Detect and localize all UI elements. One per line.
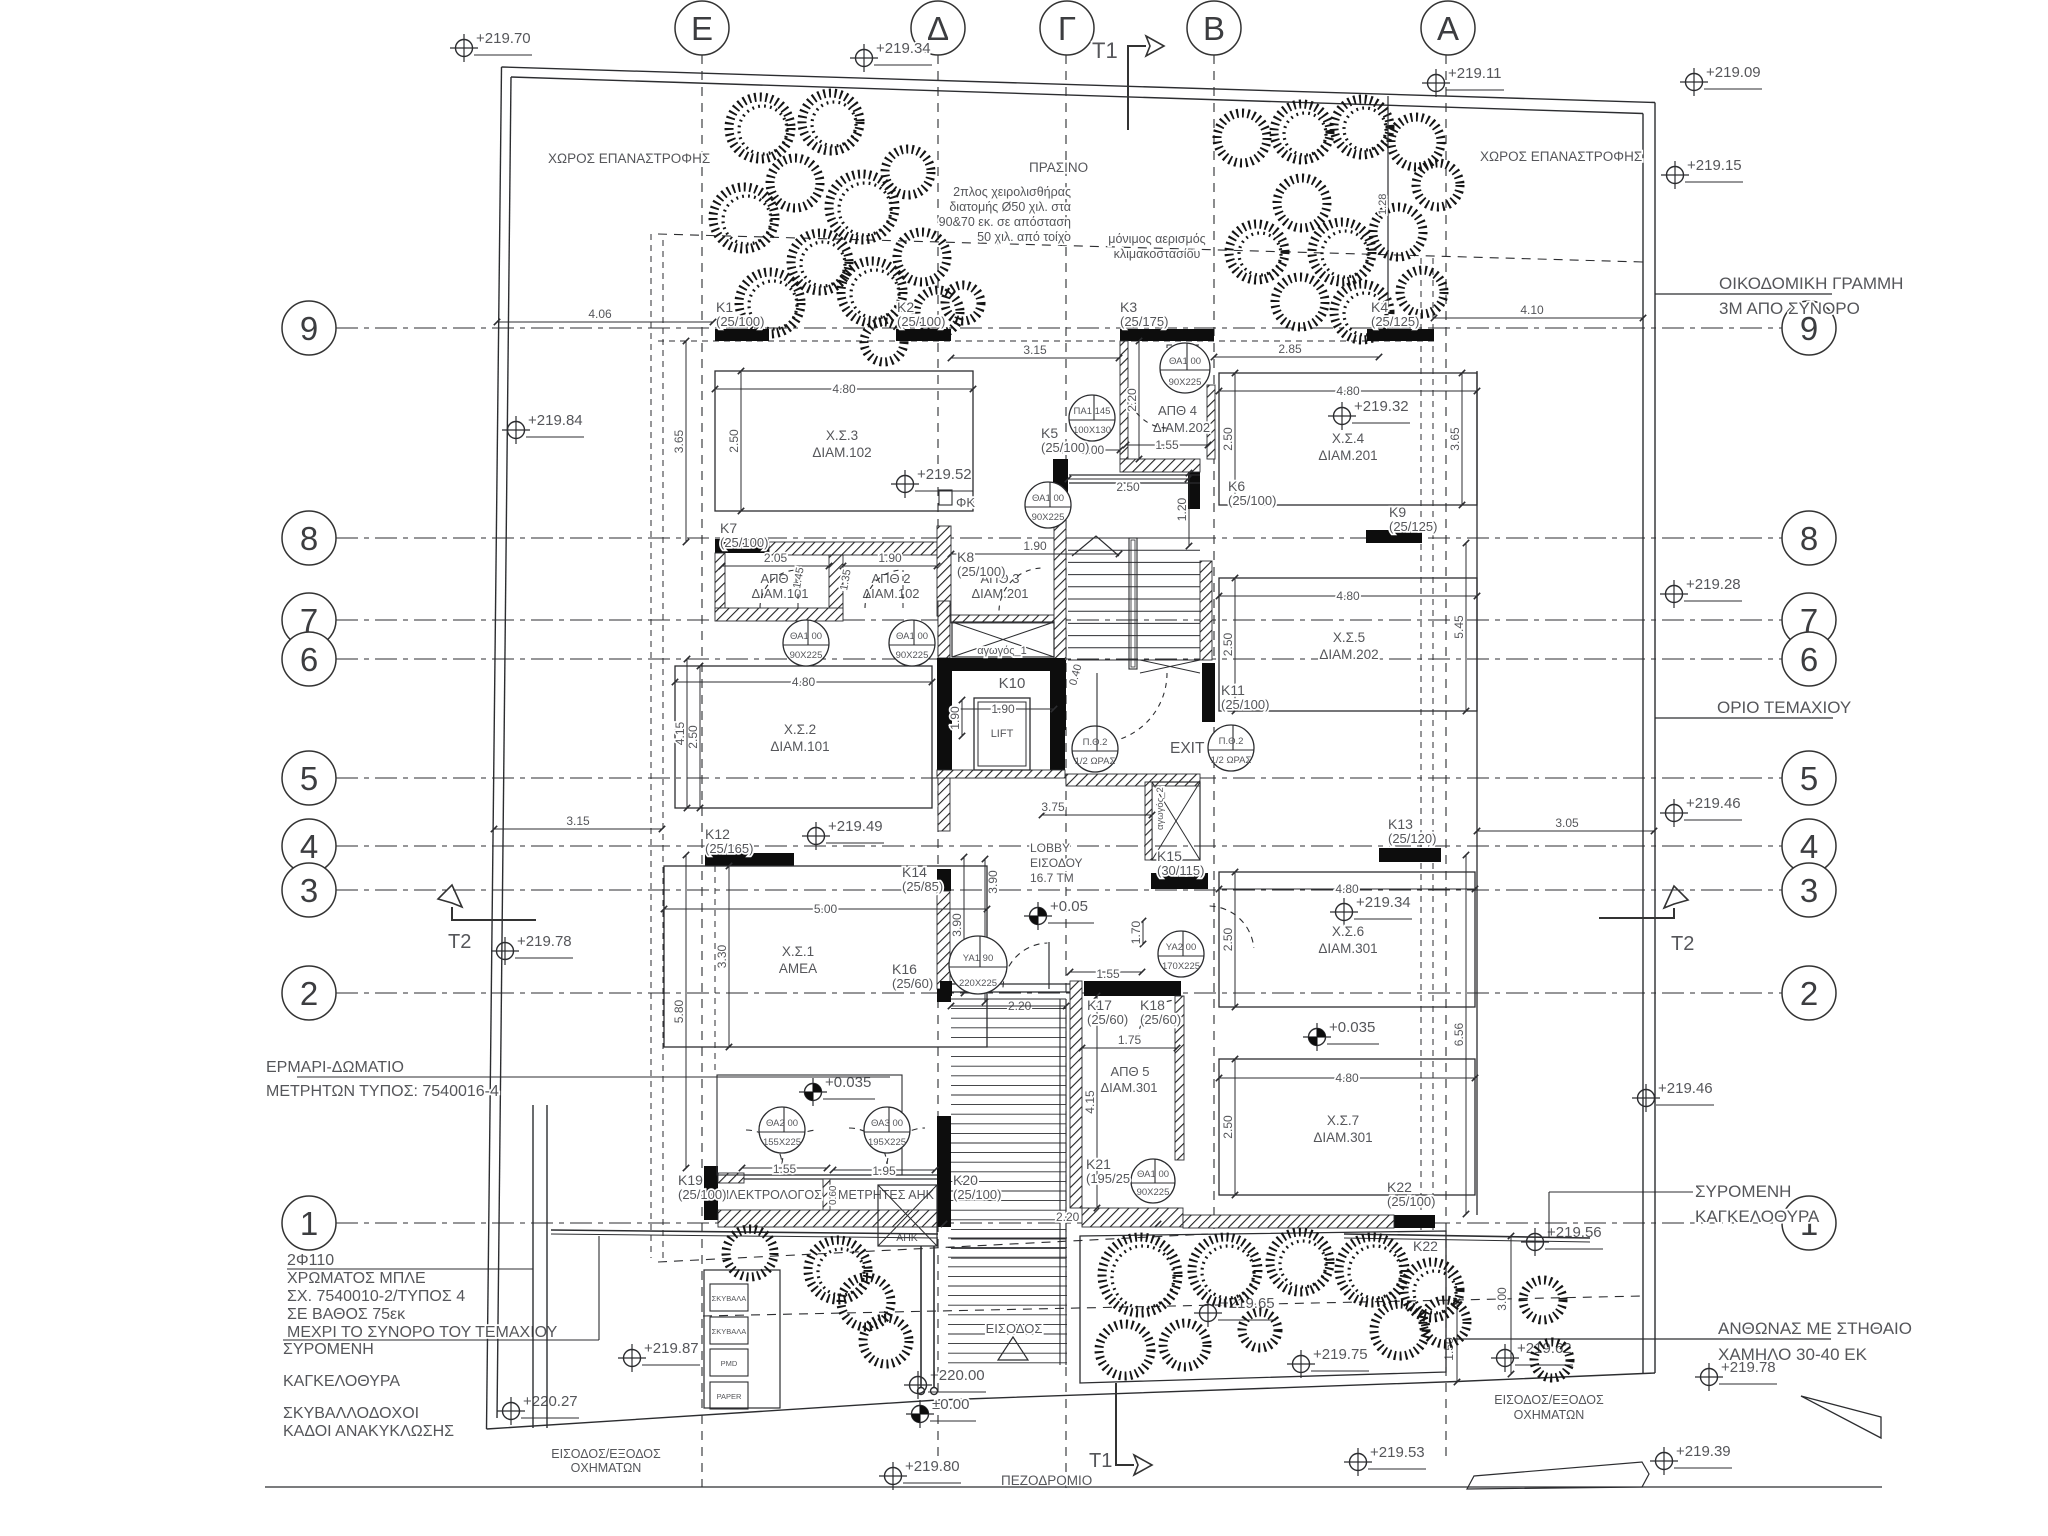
svg-text:(25/60): (25/60)	[1087, 1012, 1128, 1027]
svg-text:ΧΩΡΟΣ ΕΠΑΝΑΣΤΡΟΦΗΣ: ΧΩΡΟΣ ΕΠΑΝΑΣΤΡΟΦΗΣ	[1480, 149, 1642, 164]
svg-text:(25/100): (25/100)	[957, 564, 1005, 579]
svg-text:ΣΥΡΟΜΕΝΗ: ΣΥΡΟΜΕΝΗ	[1695, 1182, 1791, 1201]
svg-text:ΠΕΖΟΔΡΟΜΙΟ: ΠΕΖΟΔΡΟΜΙΟ	[1001, 1473, 1092, 1488]
svg-text:4: 4	[1800, 828, 1818, 865]
svg-text:195Χ225: 195Χ225	[868, 1137, 906, 1148]
svg-text:5.80: 5.80	[672, 999, 686, 1023]
svg-text:+0.05: +0.05	[1050, 898, 1088, 915]
svg-text:4.80: 4.80	[1336, 384, 1360, 398]
svg-text:Γ: Γ	[1058, 10, 1076, 47]
svg-text:ΕΡΜΑΡΙ-ΔΩΜΑΤΙΟ: ΕΡΜΑΡΙ-ΔΩΜΑΤΙΟ	[266, 1059, 404, 1076]
svg-text:1.90: 1.90	[1023, 539, 1047, 553]
svg-text:K20: K20	[953, 1172, 978, 1188]
svg-text:ΔΙΑΜ.102: ΔΙΑΜ.102	[812, 445, 871, 460]
svg-text:(25/85): (25/85)	[902, 879, 943, 894]
svg-text:6: 6	[1800, 641, 1818, 678]
svg-text:4.10: 4.10	[1520, 303, 1544, 317]
svg-text:1.70: 1.70	[1129, 920, 1143, 944]
svg-text:YA2 00: YA2 00	[1166, 942, 1196, 953]
svg-text:ΟΙΚΟΔΟΜΙΚΗ ΓΡΑΜΜΗ: ΟΙΚΟΔΟΜΙΚΗ ΓΡΑΜΜΗ	[1719, 274, 1903, 293]
svg-text:+219.75: +219.75	[1313, 1346, 1368, 1363]
svg-text:(25/125): (25/125)	[1371, 314, 1419, 329]
svg-text:3.65: 3.65	[1448, 427, 1462, 451]
svg-text:5.45: 5.45	[1452, 615, 1466, 639]
svg-text:K21: K21	[1086, 1156, 1111, 1172]
svg-text:μόνιμος αερισμός: μόνιμος αερισμός	[1108, 232, 1205, 246]
svg-text:+219.84: +219.84	[528, 412, 583, 429]
svg-text:3.05: 3.05	[1555, 816, 1579, 830]
svg-text:ΜΕΧΡΙ ΤΟ ΣΥΝΟΡΟ ΤΟΥ ΤΕΜΑΧΙΟΥ: ΜΕΧΡΙ ΤΟ ΣΥΝΟΡΟ ΤΟΥ ΤΕΜΑΧΙΟΥ	[287, 1324, 558, 1341]
svg-text:ΘΑ1 00: ΘΑ1 00	[1169, 356, 1201, 367]
svg-text:2.85: 2.85	[1278, 342, 1302, 356]
svg-text:90Χ225: 90Χ225	[1169, 377, 1202, 388]
svg-text:+219.11: +219.11	[1448, 65, 1502, 82]
svg-text:90Χ225: 90Χ225	[1137, 1187, 1170, 1198]
svg-text:+219.52: +219.52	[917, 466, 972, 483]
svg-text:±0.00: ±0.00	[932, 1396, 969, 1413]
svg-text:3.15: 3.15	[566, 814, 590, 828]
svg-text:LOBBY: LOBBY	[1030, 841, 1070, 855]
svg-text:K4: K4	[1371, 299, 1388, 315]
svg-text:(25/100): (25/100)	[678, 1187, 726, 1202]
svg-text:ΔΙΑΜ.201: ΔΙΑΜ.201	[1318, 448, 1377, 463]
svg-text:(25/100): (25/100)	[716, 314, 764, 329]
svg-text:220Χ225: 220Χ225	[959, 978, 997, 989]
svg-text:+219.39: +219.39	[1676, 1443, 1731, 1460]
svg-text:K10: K10	[999, 675, 1026, 692]
svg-text:K9: K9	[1389, 504, 1406, 520]
svg-text:K19: K19	[678, 1172, 703, 1188]
svg-text:K11: K11	[1221, 682, 1245, 698]
svg-text:(25/100): (25/100)	[897, 314, 945, 329]
svg-text:(25/175): (25/175)	[1120, 314, 1168, 329]
svg-text:LIFT: LIFT	[991, 728, 1014, 740]
svg-text:5: 5	[1800, 760, 1818, 797]
svg-text:ΘΑ2 00: ΘΑ2 00	[766, 1118, 798, 1129]
svg-text:0.60: 0.60	[828, 1185, 839, 1205]
svg-text:T2: T2	[1671, 933, 1694, 955]
svg-text:YA1 90: YA1 90	[963, 953, 993, 964]
svg-text:(25/100): (25/100)	[1221, 697, 1269, 712]
svg-text:2.50: 2.50	[686, 725, 700, 749]
svg-text:ΧΑΜΗΛΟ 30-40 ΕΚ: ΧΑΜΗΛΟ 30-40 ΕΚ	[1718, 1345, 1868, 1364]
svg-text:K18: K18	[1140, 997, 1165, 1013]
svg-text:ΑΠΘ 4: ΑΠΘ 4	[1158, 403, 1197, 418]
svg-text:K2: K2	[897, 299, 914, 315]
svg-text:ΠΑ1 145: ΠΑ1 145	[1074, 406, 1111, 417]
svg-text:ΚΑΓΚΕΛΟΘΥΡΑ: ΚΑΓΚΕΛΟΘΥΡΑ	[283, 1373, 400, 1390]
svg-text:ΔΙΑΜ.202: ΔΙΑΜ.202	[1153, 420, 1210, 435]
svg-text:+219.78: +219.78	[517, 933, 572, 950]
svg-text:+219.80: +219.80	[905, 1458, 960, 1475]
svg-text:4.80: 4.80	[1335, 882, 1359, 896]
svg-text:+220.00: +220.00	[930, 1367, 985, 1384]
svg-text:ΘΑ1 00: ΘΑ1 00	[1137, 1169, 1169, 1180]
svg-text:3.30: 3.30	[715, 944, 729, 968]
svg-text:3.65: 3.65	[672, 429, 686, 453]
svg-text:3Μ ΑΠΟ ΣΥΝΟΡΟ: 3Μ ΑΠΟ ΣΥΝΟΡΟ	[1719, 299, 1860, 318]
svg-text:3.15: 3.15	[1023, 343, 1047, 357]
svg-text:Χ.Σ.2: Χ.Σ.2	[784, 722, 816, 737]
svg-text:(195/25: (195/25	[1086, 1171, 1130, 1186]
svg-text:8: 8	[1800, 520, 1818, 557]
svg-text:EXIT: EXIT	[1170, 740, 1205, 757]
svg-text:4.80: 4.80	[1336, 589, 1360, 603]
svg-text:2.20: 2.20	[1056, 1210, 1080, 1224]
svg-text:+219.32: +219.32	[1354, 398, 1409, 415]
svg-text:ΔΙΑΜ.301: ΔΙΑΜ.301	[1313, 1130, 1372, 1145]
svg-text:ΟΡΙΟ ΤΕΜΑΧΙΟΥ: ΟΡΙΟ ΤΕΜΑΧΙΟΥ	[1717, 698, 1851, 717]
svg-text:+219.09: +219.09	[1706, 64, 1761, 81]
svg-text:κλιμακοστασίου: κλιμακοστασίου	[1114, 247, 1201, 261]
svg-text:1.90: 1.90	[991, 702, 1015, 716]
svg-text:9: 9	[300, 310, 318, 347]
svg-text:3.90: 3.90	[986, 870, 1000, 894]
svg-text:ΠΡΑΣΙΝΟ: ΠΡΑΣΙΝΟ	[1029, 160, 1088, 175]
svg-text:ΔΙΑΜ.201: ΔΙΑΜ.201	[971, 586, 1028, 601]
svg-text:3: 3	[300, 872, 318, 909]
svg-text:90Χ225: 90Χ225	[896, 650, 929, 661]
svg-text:(30/115): (30/115)	[1157, 863, 1204, 878]
svg-text:ΘΑ3 00: ΘΑ3 00	[871, 1118, 903, 1129]
svg-text:+219.34: +219.34	[1356, 894, 1411, 911]
svg-text:2.50: 2.50	[1116, 480, 1140, 494]
svg-text:ΧΩΡΟΣ ΕΠΑΝΑΣΤΡΟΦΗΣ: ΧΩΡΟΣ ΕΠΑΝΑΣΤΡΟΦΗΣ	[548, 151, 710, 166]
svg-text:2: 2	[300, 975, 318, 1012]
svg-text:4.15: 4.15	[1083, 1090, 1097, 1114]
svg-text:2.50: 2.50	[1221, 927, 1235, 951]
svg-text:90Χ225: 90Χ225	[790, 650, 823, 661]
svg-text:4.80: 4.80	[1335, 1071, 1359, 1085]
svg-text:6: 6	[300, 641, 318, 678]
svg-text:(25/100): (25/100)	[1228, 493, 1276, 508]
svg-text:ΔΙΑΜ.202: ΔΙΑΜ.202	[1319, 647, 1378, 662]
svg-text:2.20: 2.20	[1125, 388, 1139, 412]
svg-text:8: 8	[300, 520, 318, 557]
svg-text:+219.70: +219.70	[476, 30, 531, 47]
svg-text:K8: K8	[957, 549, 974, 565]
svg-text:K5: K5	[1041, 425, 1058, 441]
svg-text:ΕΙΣΟΔΟΣ/ΕΞΟΔΟΣ: ΕΙΣΟΔΟΣ/ΕΞΟΔΟΣ	[1494, 1393, 1604, 1407]
svg-text:PMD: PMD	[721, 1359, 738, 1368]
svg-text:ΣΕ ΒΑΘΟΣ 75εκ: ΣΕ ΒΑΘΟΣ 75εκ	[287, 1306, 406, 1323]
svg-text:Χ.Σ.5: Χ.Σ.5	[1333, 630, 1365, 645]
svg-text:ΗΛΕΚΤΡΟΛΟΓΟΣ: ΗΛΕΚΤΡΟΛΟΓΟΣ	[720, 1188, 822, 1202]
svg-text:(25/100): (25/100)	[953, 1187, 1001, 1202]
svg-text:K7: K7	[720, 520, 737, 536]
svg-text:(25/100): (25/100)	[720, 535, 768, 550]
svg-text:(25/100): (25/100)	[1387, 1194, 1435, 1209]
svg-text:ΜΕΤΡΗΤΩΝ ΤΥΠΟΣ: 7540016-4: ΜΕΤΡΗΤΩΝ ΤΥΠΟΣ: 7540016-4	[266, 1083, 499, 1100]
svg-text:(25/125): (25/125)	[1389, 519, 1437, 534]
svg-text:ΧΡΩΜΑΤΟΣ ΜΠΛΕ: ΧΡΩΜΑΤΟΣ ΜΠΛΕ	[287, 1270, 426, 1287]
svg-text:ΣΥΡΟΜΕΝΗ: ΣΥΡΟΜΕΝΗ	[283, 1341, 374, 1358]
svg-text:διατομής Ø50 χιλ. στα: διατομής Ø50 χιλ. στα	[949, 200, 1071, 214]
svg-text:3.00: 3.00	[1495, 1287, 1509, 1311]
svg-text:ΣΧ. 7540010-2/ΤΥΠΟΣ 4: ΣΧ. 7540010-2/ΤΥΠΟΣ 4	[287, 1288, 465, 1305]
svg-text:3.90: 3.90	[950, 913, 964, 937]
svg-text:(25/60): (25/60)	[1140, 1012, 1181, 1027]
svg-text:Χ.Σ.3: Χ.Σ.3	[826, 428, 858, 443]
svg-text:+219.15: +219.15	[1687, 157, 1742, 174]
svg-text:1.20: 1.20	[1175, 497, 1189, 521]
svg-text:4.80: 4.80	[792, 675, 816, 689]
svg-text:2.50: 2.50	[1221, 632, 1235, 656]
svg-text:1.28: 1.28	[1377, 194, 1389, 215]
svg-text:K22: K22	[1413, 1238, 1438, 1254]
svg-text:3.75: 3.75	[1041, 800, 1065, 814]
svg-text:+219.49: +219.49	[828, 818, 883, 835]
svg-text:K3: K3	[1120, 299, 1137, 315]
svg-text:αγωγός_1: αγωγός_1	[977, 645, 1027, 657]
svg-text:Π.Θ.2: Π.Θ.2	[1219, 736, 1244, 747]
svg-text:K17: K17	[1087, 997, 1112, 1013]
svg-text:155Χ225: 155Χ225	[763, 1137, 801, 1148]
svg-text:+219.53: +219.53	[1370, 1444, 1425, 1461]
svg-text:100Χ130: 100Χ130	[1073, 425, 1111, 436]
svg-text:αγωγός_2: αγωγός_2	[1155, 787, 1166, 830]
svg-text:T2: T2	[448, 931, 471, 953]
svg-text:90Χ225: 90Χ225	[1032, 512, 1065, 523]
svg-text:4.15: 4.15	[673, 721, 687, 745]
svg-text:1.55: 1.55	[773, 1162, 797, 1176]
svg-text:ΔΙΑΜ.301: ΔΙΑΜ.301	[1318, 941, 1377, 956]
svg-text:90&70 εκ. σε απόσταση: 90&70 εκ. σε απόσταση	[939, 215, 1071, 229]
svg-text:ΣΚΥΒΑΛΑ: ΣΚΥΒΑΛΑ	[712, 1294, 747, 1303]
svg-text:A: A	[1437, 10, 1459, 47]
svg-text:Χ.Σ.4: Χ.Σ.4	[1332, 431, 1365, 446]
svg-text:1/2 ΩΡΑΣ: 1/2 ΩΡΑΣ	[1211, 755, 1252, 766]
svg-text:K22: K22	[1387, 1179, 1412, 1195]
svg-text:50 χιλ. από τοίχο: 50 χιλ. από τοίχο	[977, 230, 1071, 244]
svg-text:2πλος χειρολισθήρας: 2πλος χειρολισθήρας	[953, 185, 1071, 199]
svg-text:+219.46: +219.46	[1658, 1080, 1713, 1097]
svg-text:5.00: 5.00	[814, 902, 838, 916]
svg-text:K15: K15	[1157, 848, 1182, 864]
svg-text:Χ.Σ.6: Χ.Σ.6	[1332, 924, 1364, 939]
svg-text:ΘΑ1 00: ΘΑ1 00	[896, 631, 928, 642]
svg-text:2.50: 2.50	[1221, 427, 1235, 451]
svg-text:6.56: 6.56	[1452, 1022, 1466, 1046]
svg-text:ΣΚΥΒΑΛΛΟΔΟΧΟΙ: ΣΚΥΒΑΛΛΟΔΟΧΟΙ	[283, 1405, 419, 1422]
svg-text:K16: K16	[892, 961, 917, 977]
svg-text:K14: K14	[902, 864, 927, 880]
svg-text:AMEA: AMEA	[779, 961, 817, 976]
svg-text:1: 1	[300, 1205, 318, 1242]
svg-text:ΘΑ1 00: ΘΑ1 00	[1032, 493, 1064, 504]
svg-text:4.06: 4.06	[588, 307, 612, 321]
svg-text:+219.34: +219.34	[876, 40, 931, 57]
svg-text:Χ.Σ.7: Χ.Σ.7	[1327, 1113, 1359, 1128]
svg-text:K12: K12	[705, 826, 730, 842]
svg-text:1.75: 1.75	[1118, 1033, 1142, 1047]
svg-text:ΕΙΣΟΔΟΥ: ΕΙΣΟΔΟΥ	[1030, 856, 1083, 870]
svg-text:ΣΚΥΒΑΛΑ: ΣΚΥΒΑΛΑ	[712, 1327, 747, 1336]
svg-text:(25/165): (25/165)	[705, 841, 753, 856]
svg-text:ΦΚ: ΦΚ	[956, 495, 975, 510]
svg-text:T1: T1	[1092, 38, 1118, 63]
svg-text:T1: T1	[1089, 1450, 1112, 1472]
svg-text:+0.035: +0.035	[1329, 1019, 1375, 1036]
svg-text:ΕΙΣΟΔΟΣ/ΕΞΟΔΟΣ: ΕΙΣΟΔΟΣ/ΕΞΟΔΟΣ	[551, 1447, 661, 1461]
svg-text:ΑΠΘ 5: ΑΠΘ 5	[1110, 1064, 1149, 1079]
svg-text:E: E	[691, 10, 713, 47]
svg-text:ΕΙΣΟΔΟΣ: ΕΙΣΟΔΟΣ	[986, 1321, 1043, 1336]
svg-text:K1: K1	[716, 299, 733, 315]
svg-text:1.90: 1.90	[878, 551, 902, 565]
svg-text:ΘΑ1 00: ΘΑ1 00	[790, 631, 822, 642]
svg-text:(25/120): (25/120)	[1388, 831, 1436, 846]
svg-text:K13: K13	[1388, 816, 1413, 832]
svg-text:ΟΧΗΜΑΤΩΝ: ΟΧΗΜΑΤΩΝ	[571, 1461, 642, 1475]
svg-text:(25/100): (25/100)	[1041, 440, 1089, 455]
svg-text:5: 5	[300, 760, 318, 797]
svg-text:+220.27: +220.27	[523, 1393, 578, 1410]
svg-text:2: 2	[1800, 975, 1818, 1012]
svg-text:2.05: 2.05	[764, 551, 788, 565]
svg-text:1.55: 1.55	[1155, 438, 1179, 452]
svg-text:1.95: 1.95	[872, 1164, 896, 1178]
svg-text:4.80: 4.80	[832, 382, 856, 396]
svg-text:ΑΠΘ 2: ΑΠΘ 2	[871, 571, 910, 586]
svg-text:ΚΑΔΟΙ ΑΝΑΚΥΚΛΩΣΗΣ: ΚΑΔΟΙ ΑΝΑΚΥΚΛΩΣΗΣ	[283, 1423, 454, 1440]
svg-text:+219.28: +219.28	[1686, 576, 1741, 593]
svg-text:4: 4	[300, 828, 318, 865]
svg-text:ΜΕΤΡΗΤΕΣ ΑΗΚ: ΜΕΤΡΗΤΕΣ ΑΗΚ	[838, 1188, 935, 1202]
svg-text:1.90: 1.90	[948, 706, 962, 730]
svg-text:ΚΑΓΚΕΛΟΘΥΡΑ: ΚΑΓΚΕΛΟΘΥΡΑ	[1695, 1207, 1820, 1226]
svg-text:+219.46: +219.46	[1686, 795, 1741, 812]
svg-text:2.50: 2.50	[727, 429, 741, 453]
svg-text:B: B	[1203, 10, 1225, 47]
svg-text:ΑΝΘΩΝΑΣ ΜΕ ΣΤΗΘΑΙΟ: ΑΝΘΩΝΑΣ ΜΕ ΣΤΗΘΑΙΟ	[1718, 1319, 1912, 1338]
svg-text:1/2 ΩΡΑΣ: 1/2 ΩΡΑΣ	[1075, 756, 1116, 767]
svg-text:Χ.Σ.1: Χ.Σ.1	[782, 944, 814, 959]
svg-text:(25/60): (25/60)	[892, 976, 933, 991]
svg-text:1.55: 1.55	[1096, 967, 1120, 981]
svg-text:3: 3	[1800, 872, 1818, 909]
svg-text:2Φ110: 2Φ110	[287, 1252, 334, 1269]
svg-text:Π.Θ.2: Π.Θ.2	[1083, 737, 1108, 748]
svg-text:ΔΙΑΜ.301: ΔΙΑΜ.301	[1100, 1080, 1157, 1095]
svg-text:16.7 ΤΜ: 16.7 ΤΜ	[1030, 871, 1074, 885]
svg-text:K6: K6	[1228, 478, 1245, 494]
svg-text:2.50: 2.50	[1221, 1115, 1235, 1139]
svg-text:ΔΙΑΜ.101: ΔΙΑΜ.101	[770, 739, 829, 754]
svg-text:170Χ225: 170Χ225	[1162, 961, 1200, 972]
svg-text:ΟΧΗΜΑΤΩΝ: ΟΧΗΜΑΤΩΝ	[1514, 1408, 1585, 1422]
svg-text:+219.87: +219.87	[644, 1340, 699, 1357]
svg-text:PAPER: PAPER	[717, 1392, 742, 1401]
